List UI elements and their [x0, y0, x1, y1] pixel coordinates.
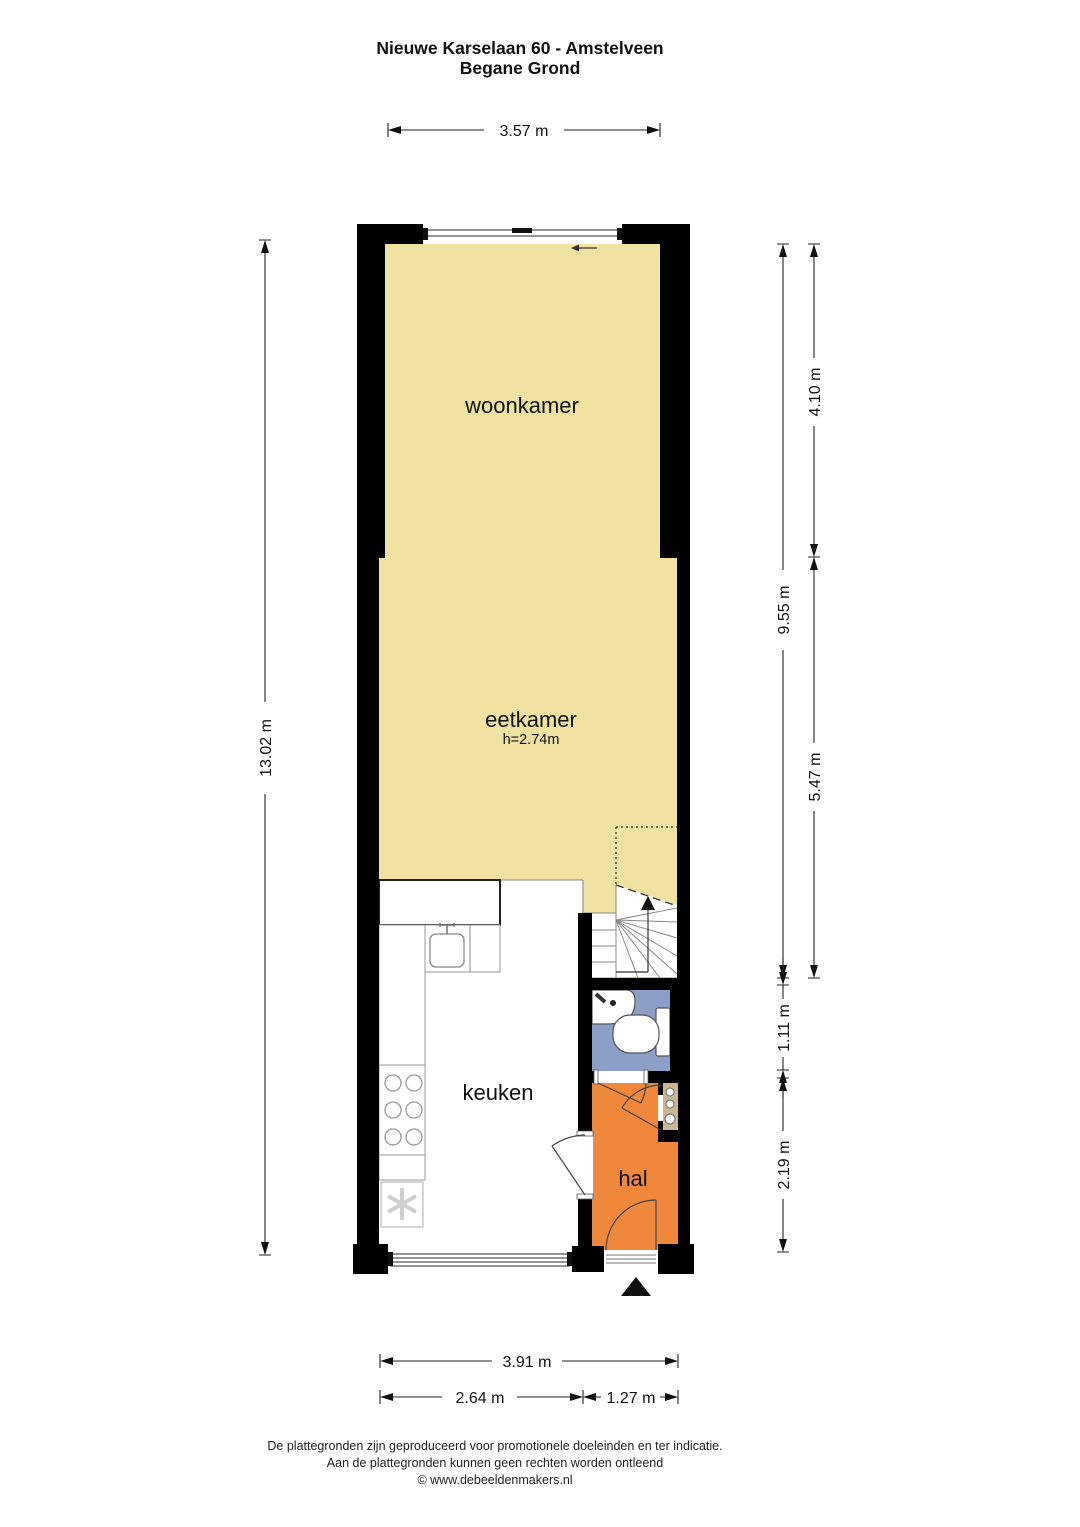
wall-keuken-hal-lower	[578, 1195, 592, 1252]
dim-toilet-depth: 1.11 m	[776, 958, 793, 1097]
dim-label: 3.57 m	[500, 123, 549, 140]
dim-woonkamer-depth: 4.10 m	[807, 244, 824, 557]
footer-copyright: © www.debeeldenmakers.nl	[0, 1472, 990, 1489]
kitchen-counter-bottom	[379, 1155, 425, 1180]
label-woonkamer: woonkamer	[464, 393, 579, 418]
door-jamb	[594, 1070, 598, 1084]
stove-burner	[406, 1102, 422, 1118]
stove-burner	[385, 1102, 401, 1118]
sliding-door-end-cap	[423, 228, 428, 240]
kitchen-fixtures	[379, 880, 500, 1227]
meter-icon	[666, 1100, 674, 1108]
kitchen-window-opening	[388, 1250, 572, 1268]
floorplan-svg: woonkamer eetkamer h=2.74m keuken hal 3.…	[0, 0, 1080, 1527]
meter-icons	[665, 1088, 675, 1124]
stove-burner	[406, 1129, 422, 1145]
wall-toilet-right	[670, 990, 690, 1071]
wall-left-lower	[357, 558, 379, 1252]
floorplan-page: Nieuwe Karselaan 60 - Amstelveen Begane …	[0, 0, 1080, 1527]
dim-hal-width: 1.27 m	[583, 1390, 678, 1407]
wall-bottom-mid-pier	[572, 1246, 604, 1272]
window-end-cap	[567, 1252, 572, 1266]
dim-living-depth: 9.55 m	[776, 244, 793, 978]
dim-label: 2.64 m	[456, 1390, 505, 1407]
footer-line-2: Aan de plattegronden kunnen geen rechten…	[0, 1455, 990, 1472]
entrance-arrow-icon	[621, 1277, 651, 1296]
wall-hal-right	[678, 1142, 690, 1252]
stove-burner	[406, 1075, 422, 1091]
dim-hal-depth: 2.19 m	[776, 1078, 793, 1252]
washbasin-drain-icon	[610, 1000, 616, 1006]
stove-burner	[385, 1075, 401, 1091]
window-end-cap	[388, 1252, 393, 1266]
dim-total-width: 3.91 m	[380, 1354, 678, 1371]
toilet-bowl	[613, 1015, 659, 1053]
wall-right-lower	[677, 558, 690, 985]
dim-label: 9.55 m	[776, 586, 793, 635]
footer-disclaimer: De plattegronden zijn geproduceerd voor …	[0, 1438, 990, 1489]
dim-label: 4.10 m	[807, 368, 824, 417]
wall-toilet-bottom-right	[646, 1071, 690, 1083]
wall-bottom-right-pier	[658, 1244, 694, 1274]
wall-toilet-top	[578, 978, 690, 990]
wall-right-upper	[660, 224, 690, 558]
dim-label: 1.27 m	[607, 1390, 656, 1407]
toilet-door-opening	[596, 1071, 646, 1083]
kitchen-counter-left	[379, 925, 425, 1065]
wall-meterkast-bottom	[658, 1130, 690, 1142]
dim-label: 3.91 m	[503, 1354, 552, 1371]
label-hal: hal	[618, 1166, 647, 1191]
dim-label: 5.47 m	[807, 753, 824, 802]
dim-label: 2.19 m	[776, 1141, 793, 1190]
label-keuken: keuken	[463, 1080, 534, 1105]
label-eetkamer-height: h=2.74m	[503, 732, 560, 748]
dim-eetkamer-depth: 5.47 m	[807, 557, 824, 978]
dim-label: 13.02 m	[258, 719, 275, 777]
dim-total-depth: 13.02 m	[258, 240, 275, 1255]
dim-label: 1.11 m	[776, 1004, 793, 1052]
meter-icon	[666, 1088, 674, 1096]
wall-bottom-left-pier	[353, 1244, 388, 1274]
meter-cupboard	[663, 1083, 678, 1130]
meter-icon	[665, 1114, 675, 1124]
door-kitchen-hall	[552, 1131, 593, 1199]
sliding-door-handle	[512, 228, 532, 233]
wall-keuken-hal-upper	[578, 913, 592, 1135]
dim-keuken-width: 2.64 m	[380, 1390, 583, 1407]
wall-left-upper	[357, 224, 385, 558]
door-jamb	[644, 1070, 648, 1084]
label-eetkamer: eetkamer	[485, 707, 577, 732]
footer-line-1: De plattegronden zijn geproduceerd voor …	[0, 1438, 990, 1455]
sink	[430, 934, 464, 967]
stove-burner	[385, 1129, 401, 1145]
dim-woonkamer-width: 3.57 m	[388, 123, 660, 140]
kitchen-counter-top	[379, 880, 500, 925]
sliding-door-end-cap	[617, 228, 622, 240]
kitchen-window	[388, 1250, 572, 1268]
